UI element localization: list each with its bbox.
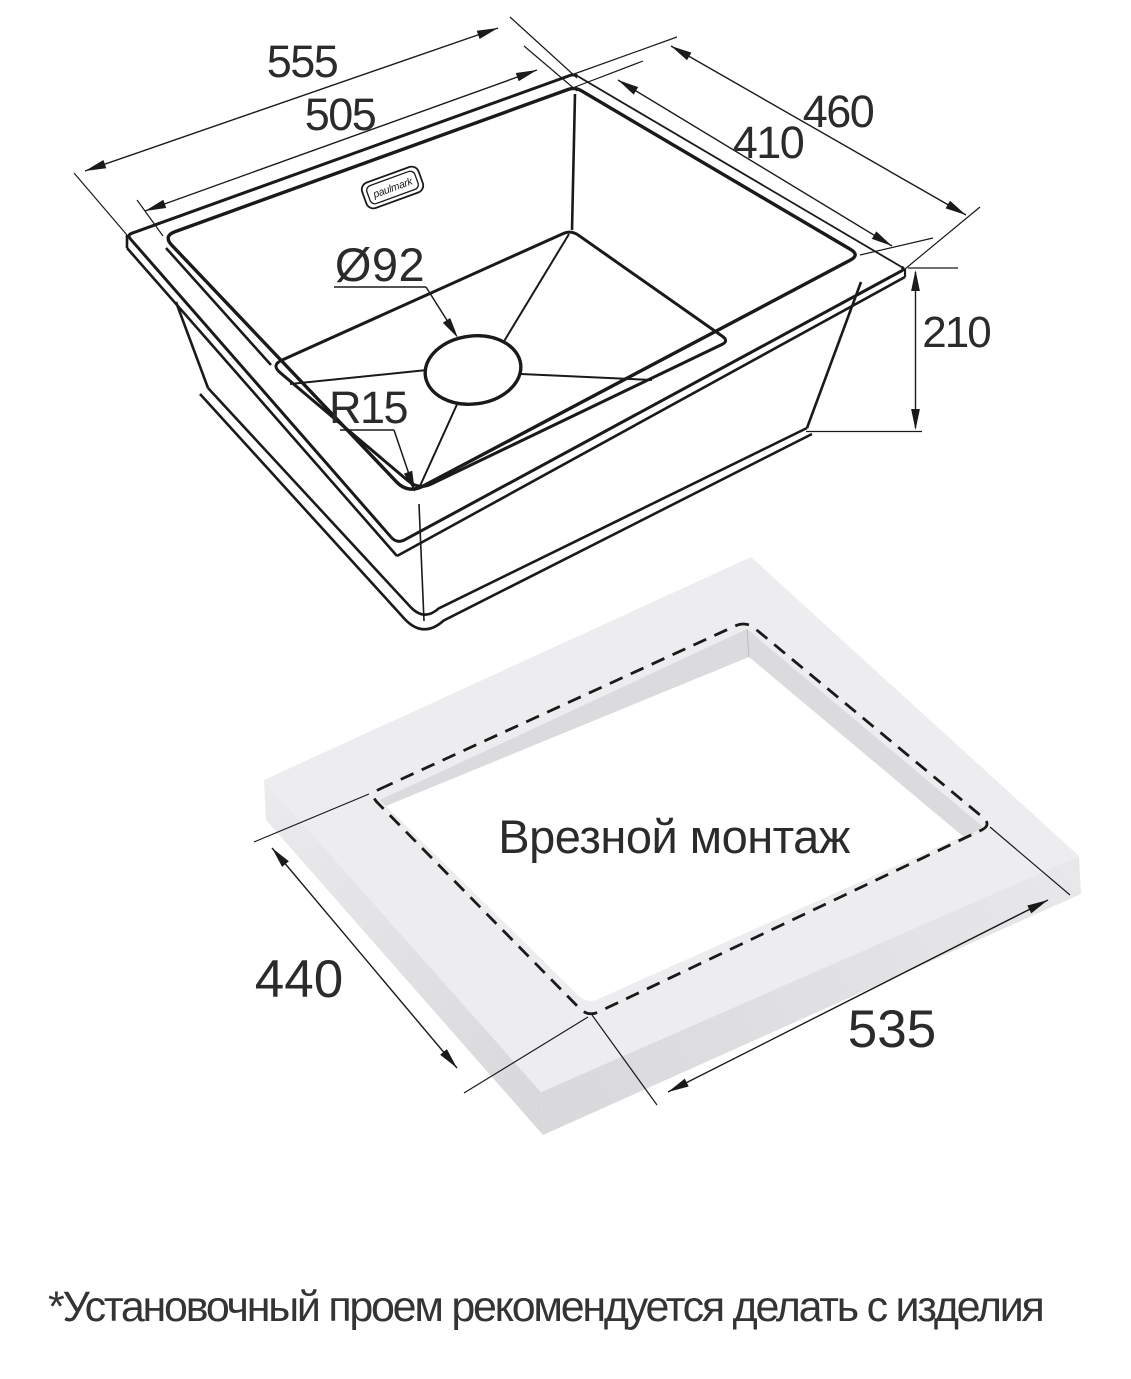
svg-text:R15: R15	[329, 382, 408, 433]
svg-text:535: 535	[848, 1000, 936, 1059]
svg-text:440: 440	[255, 950, 343, 1009]
svg-text:Врезной монтаж: Врезной монтаж	[498, 810, 851, 863]
svg-text:Ø92: Ø92	[335, 238, 425, 291]
svg-text:*Установочный проем рекомендуе: *Установочный проем рекомендуется делать…	[48, 1283, 1043, 1331]
svg-text:505: 505	[305, 89, 376, 140]
svg-text:460: 460	[803, 86, 874, 137]
svg-text:555: 555	[267, 36, 338, 87]
svg-text:210: 210	[922, 308, 990, 357]
svg-text:410: 410	[733, 117, 804, 168]
